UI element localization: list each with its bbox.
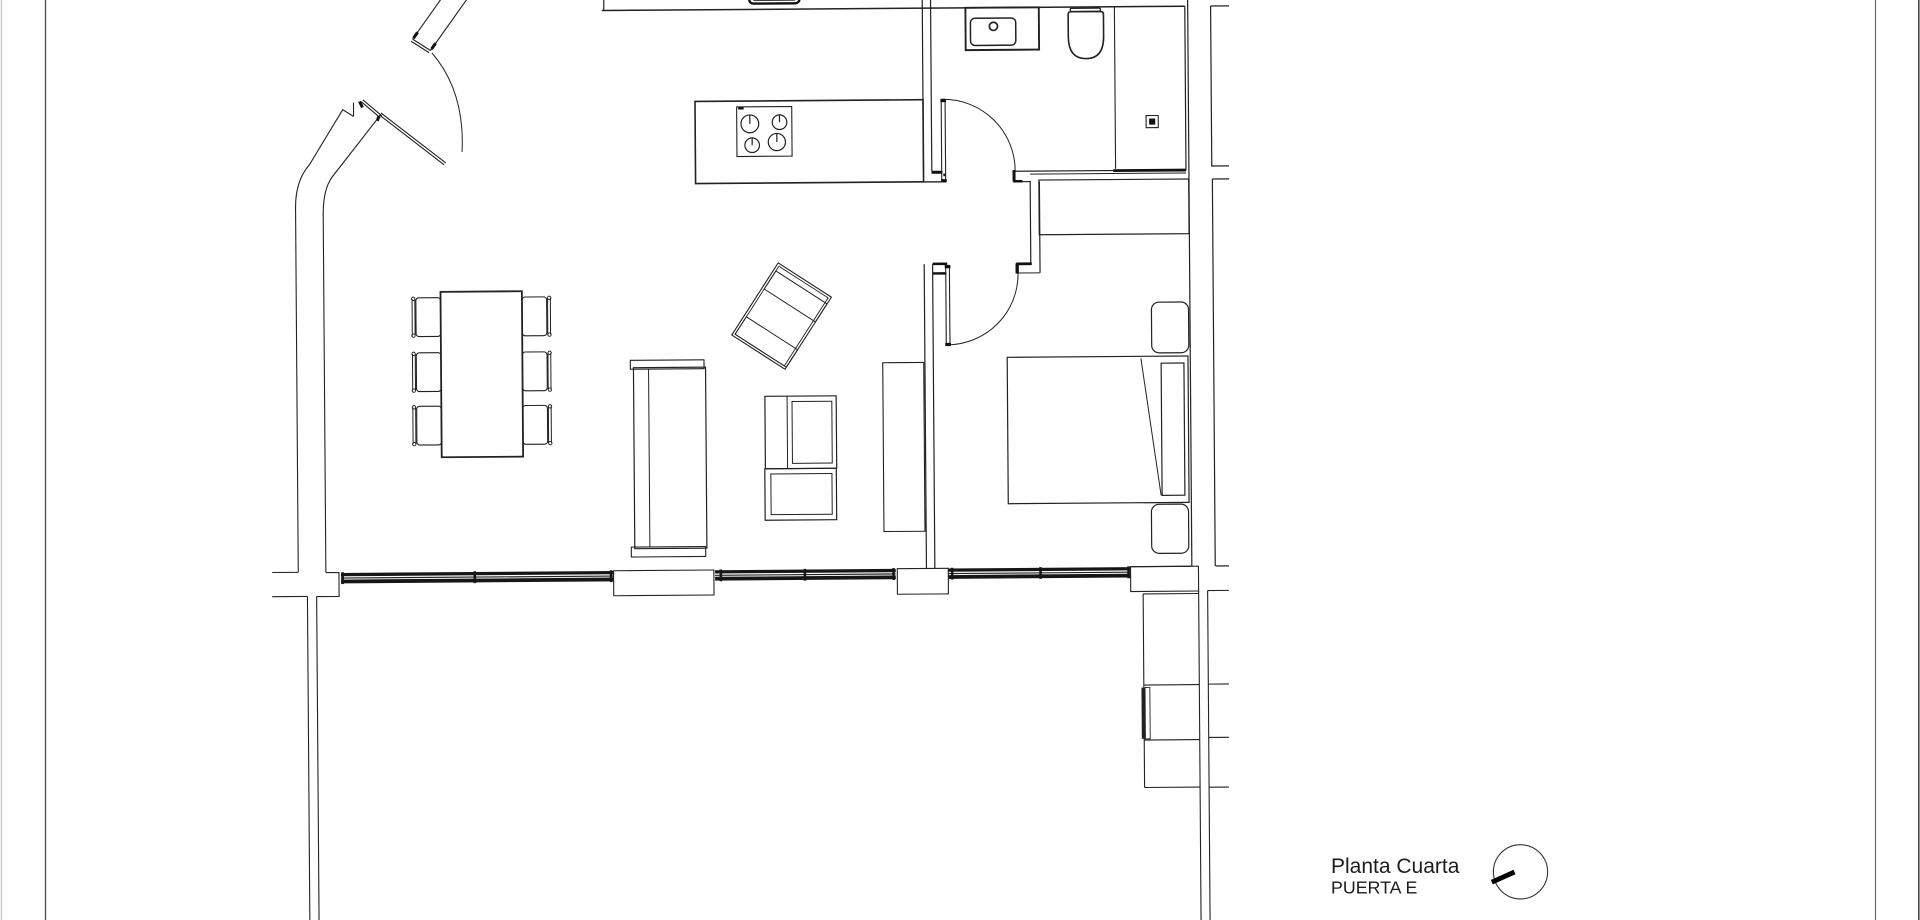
svg-text:PUERTA E: PUERTA E bbox=[1331, 878, 1417, 898]
svg-text:Planta Cuarta: Planta Cuarta bbox=[1331, 855, 1460, 878]
